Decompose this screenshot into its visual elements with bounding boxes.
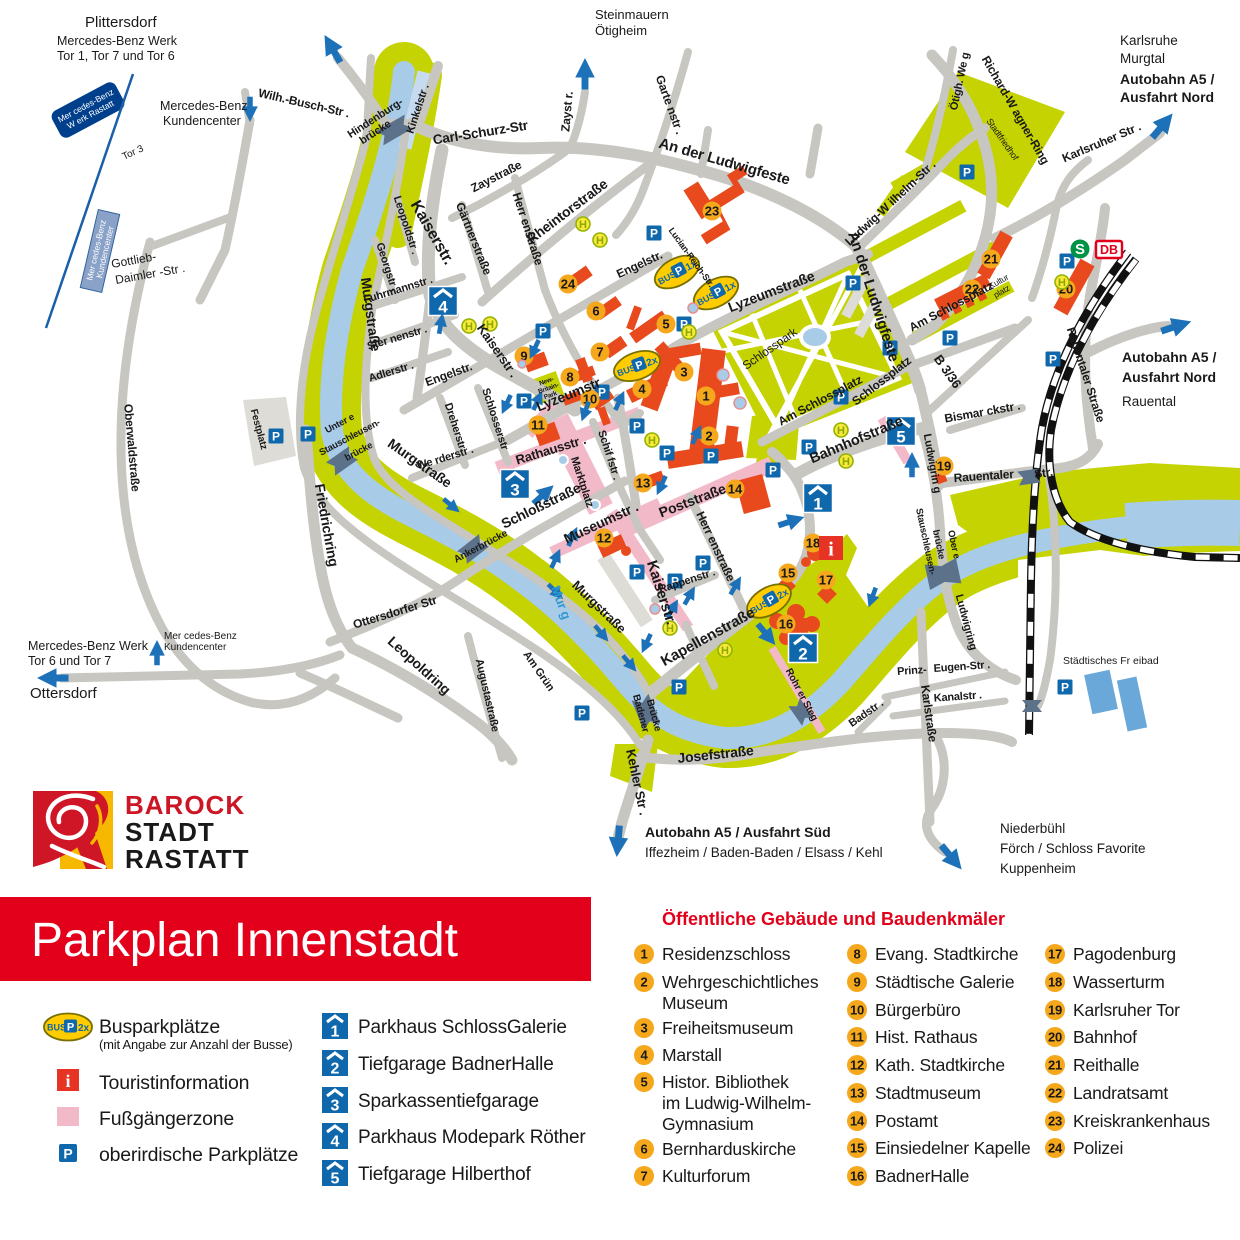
svg-text:Touristinformation: Touristinformation <box>99 1072 249 1094</box>
svg-text:Tor 6 und Tor 7: Tor 6 und Tor 7 <box>28 654 111 668</box>
svg-text:Bahnhof: Bahnhof <box>1073 1027 1137 1047</box>
svg-text:12: 12 <box>597 531 611 546</box>
svg-text:Mer cedes-Benz: Mer cedes-Benz <box>164 631 237 642</box>
svg-text:im Ludwig-Wilhelm-: im Ludwig-Wilhelm- <box>662 1093 811 1113</box>
svg-text:Ottersdorf: Ottersdorf <box>30 685 98 702</box>
svg-text:Murgtal: Murgtal <box>1120 51 1165 66</box>
svg-text:2: 2 <box>640 975 647 990</box>
svg-text:23: 23 <box>705 204 719 219</box>
svg-text:Parkplan Innenstadt: Parkplan Innenstadt <box>31 914 458 967</box>
svg-text:14: 14 <box>728 482 743 497</box>
svg-text:P: P <box>769 464 777 478</box>
svg-text:Tor 1, Tor 7 und Tor 6: Tor 1, Tor 7 und Tor 6 <box>57 49 175 63</box>
svg-text:i: i <box>828 539 834 561</box>
svg-text:8: 8 <box>853 947 860 962</box>
svg-text:Mercedes-Benz Werk: Mercedes-Benz Werk <box>57 34 178 48</box>
svg-text:Steinmauern: Steinmauern <box>595 7 669 22</box>
svg-text:5: 5 <box>331 1171 340 1188</box>
svg-text:23: 23 <box>1048 1114 1062 1129</box>
svg-text:P: P <box>1061 681 1069 695</box>
svg-text:H: H <box>465 321 473 333</box>
svg-text:24: 24 <box>1048 1141 1063 1156</box>
svg-text:16: 16 <box>779 617 793 632</box>
svg-text:RASTATT: RASTATT <box>125 844 249 874</box>
svg-text:Prinz-: Prinz- <box>897 664 928 678</box>
svg-text:(mit Angabe zur Anzahl der Bus: (mit Angabe zur Anzahl der Busse) <box>99 1037 293 1052</box>
svg-text:2: 2 <box>331 1061 340 1078</box>
svg-text:H: H <box>579 219 587 231</box>
svg-text:6: 6 <box>592 304 599 319</box>
svg-text:Kundencenter: Kundencenter <box>163 114 241 128</box>
svg-text:4: 4 <box>640 1048 648 1063</box>
svg-text:Parkhaus Modepark Röther: Parkhaus Modepark Röther <box>358 1127 586 1148</box>
svg-text:Städtische Galerie: Städtische Galerie <box>875 972 1014 992</box>
svg-text:P: P <box>633 566 641 580</box>
svg-text:Autobahn A5 /: Autobahn A5 / <box>1120 71 1214 87</box>
svg-text:BUS: BUS <box>47 1023 66 1033</box>
svg-text:Ötigheim: Ötigheim <box>595 23 647 38</box>
svg-text:Iffezheim / Baden-Baden / Elsa: Iffezheim / Baden-Baden / Elsass / Kehl <box>645 845 883 860</box>
svg-text:19: 19 <box>1048 1003 1062 1018</box>
svg-text:BAROCK: BAROCK <box>125 790 245 820</box>
svg-text:1: 1 <box>331 1024 340 1041</box>
svg-text:Einsiedelner Kapelle: Einsiedelner Kapelle <box>875 1138 1031 1158</box>
svg-text:3: 3 <box>510 481 519 500</box>
svg-text:Tiefgarage Hilberthof: Tiefgarage Hilberthof <box>358 1164 531 1185</box>
svg-text:20: 20 <box>1048 1030 1062 1045</box>
svg-text:Kreiskrankenhaus: Kreiskrankenhaus <box>1073 1111 1210 1131</box>
svg-text:Hist. Rathaus: Hist. Rathaus <box>875 1027 978 1047</box>
svg-text:Reithalle: Reithalle <box>1073 1055 1139 1075</box>
svg-text:P: P <box>578 707 586 721</box>
svg-text:Ausfahrt Nord: Ausfahrt Nord <box>1120 89 1214 105</box>
svg-text:Plittersdorf: Plittersdorf <box>85 14 158 31</box>
svg-text:P: P <box>707 450 715 464</box>
svg-text:3: 3 <box>680 365 687 380</box>
svg-text:15: 15 <box>850 1141 864 1156</box>
svg-text:P: P <box>520 395 528 409</box>
svg-text:1: 1 <box>813 495 822 514</box>
svg-text:9: 9 <box>853 975 860 990</box>
svg-text:7: 7 <box>596 345 603 360</box>
svg-text:Mercedes-Benz Werk: Mercedes-Benz Werk <box>28 639 149 653</box>
svg-text:Kuppenheim: Kuppenheim <box>1000 861 1076 876</box>
svg-text:8: 8 <box>566 370 573 385</box>
svg-text:P: P <box>650 227 658 241</box>
svg-text:Niederbühl: Niederbühl <box>1000 821 1065 836</box>
svg-text:Wasserturm: Wasserturm <box>1073 972 1165 992</box>
svg-text:11: 11 <box>531 418 545 433</box>
svg-text:H: H <box>648 435 656 447</box>
svg-text:17: 17 <box>1048 947 1062 962</box>
svg-text:P: P <box>1063 255 1071 269</box>
svg-text:P: P <box>663 447 671 461</box>
svg-text:P: P <box>675 681 683 695</box>
svg-text:10: 10 <box>850 1003 864 1018</box>
svg-text:12: 12 <box>850 1058 864 1073</box>
svg-text:Histor. Bibliothek: Histor. Bibliothek <box>662 1072 789 1092</box>
svg-text:P: P <box>963 166 971 180</box>
svg-text:H: H <box>721 645 729 657</box>
svg-text:11: 11 <box>850 1030 863 1045</box>
svg-text:BadnerHalle: BadnerHalle <box>875 1166 969 1186</box>
svg-text:13: 13 <box>636 476 650 491</box>
svg-text:15: 15 <box>781 566 795 581</box>
svg-text:3: 3 <box>331 1098 340 1115</box>
svg-text:Marstall: Marstall <box>662 1045 722 1065</box>
svg-text:STADT: STADT <box>125 817 215 847</box>
svg-text:H: H <box>842 456 850 468</box>
svg-text:Kulturforum: Kulturforum <box>662 1166 750 1186</box>
svg-text:Str.: Str. <box>1033 465 1053 481</box>
svg-text:Öffentliche Gebäude und Bauden: Öffentliche Gebäude und Baudenkmäler <box>662 909 1005 929</box>
svg-text:1: 1 <box>640 947 647 962</box>
svg-text:Busparkplätze: Busparkplätze <box>99 1016 220 1038</box>
svg-text:Polizei: Polizei <box>1073 1138 1123 1158</box>
svg-text:1: 1 <box>702 389 709 404</box>
svg-text:Parkhaus SchlossGalerie: Parkhaus SchlossGalerie <box>358 1017 567 1038</box>
svg-text:Autobahn A5 / Ausfahrt Süd: Autobahn A5 / Ausfahrt Süd <box>645 824 831 840</box>
svg-text:21: 21 <box>1048 1058 1062 1073</box>
svg-text:P: P <box>849 277 857 291</box>
svg-text:Wehrgeschichtliches: Wehrgeschichtliches <box>662 972 819 992</box>
svg-text:21: 21 <box>984 252 998 267</box>
svg-text:Freiheitsmuseum: Freiheitsmuseum <box>662 1018 793 1038</box>
svg-text:Rauental: Rauental <box>1122 394 1176 409</box>
svg-text:4: 4 <box>331 1134 340 1151</box>
svg-text:Ausfahrt Nord: Ausfahrt Nord <box>1122 369 1216 385</box>
svg-text:Pagodenburg: Pagodenburg <box>1073 944 1176 964</box>
svg-text:Tiefgarage BadnerHalle: Tiefgarage BadnerHalle <box>358 1054 554 1075</box>
svg-text:4: 4 <box>438 298 448 317</box>
svg-text:Karlsruhe: Karlsruhe <box>1120 33 1178 48</box>
svg-text:Stadtmuseum: Stadtmuseum <box>875 1083 981 1103</box>
svg-text:P: P <box>272 430 280 444</box>
svg-text:16: 16 <box>850 1169 864 1184</box>
svg-text:H: H <box>1058 277 1066 289</box>
svg-text:H: H <box>685 327 693 339</box>
svg-text:4: 4 <box>638 382 646 397</box>
svg-text:Gymnasium: Gymnasium <box>662 1114 754 1134</box>
svg-text:3: 3 <box>640 1021 647 1036</box>
svg-text:17: 17 <box>819 573 833 588</box>
svg-text:5: 5 <box>662 317 669 332</box>
svg-text:oberirdische Parkplätze: oberirdische Parkplätze <box>99 1144 298 1166</box>
svg-text:Sparkassentiefgarage: Sparkassentiefgarage <box>358 1091 539 1112</box>
svg-text:Postamt: Postamt <box>875 1111 938 1131</box>
svg-text:13: 13 <box>850 1086 864 1101</box>
svg-text:Bürgerbüro: Bürgerbüro <box>875 1000 961 1020</box>
svg-text:24: 24 <box>561 277 576 292</box>
svg-text:Museum: Museum <box>662 993 728 1013</box>
svg-text:P: P <box>1049 353 1057 367</box>
svg-text:Karlsruher Tor: Karlsruher Tor <box>1073 1000 1180 1020</box>
svg-text:P: P <box>63 1146 72 1162</box>
svg-text:2: 2 <box>705 429 712 444</box>
svg-text:P: P <box>633 420 641 434</box>
svg-text:2: 2 <box>798 645 807 664</box>
svg-text:Bernharduskirche: Bernharduskirche <box>662 1139 796 1159</box>
svg-text:Autobahn A5 /: Autobahn A5 / <box>1122 349 1216 365</box>
svg-text:Städtisches Fr eibad: Städtisches Fr eibad <box>1063 655 1159 667</box>
svg-text:P: P <box>304 428 312 442</box>
svg-text:i: i <box>65 1071 70 1091</box>
svg-text:P: P <box>946 332 954 346</box>
svg-text:H: H <box>596 235 604 247</box>
svg-text:Landratsamt: Landratsamt <box>1073 1083 1168 1103</box>
svg-text:Evang. Stadtkirche: Evang. Stadtkirche <box>875 944 1018 964</box>
svg-text:5: 5 <box>640 1075 647 1090</box>
svg-text:Mercedes-Benz: Mercedes-Benz <box>160 99 248 113</box>
svg-text:7: 7 <box>640 1169 647 1184</box>
svg-text:Fußgängerzone: Fußgängerzone <box>99 1108 234 1130</box>
svg-text:18: 18 <box>1048 975 1062 990</box>
svg-text:2x: 2x <box>78 1023 90 1034</box>
svg-text:Förch / Schloss Favorite: Förch / Schloss Favorite <box>1000 841 1146 856</box>
svg-text:18: 18 <box>806 536 820 551</box>
svg-text:Kath. Stadtkirche: Kath. Stadtkirche <box>875 1055 1005 1075</box>
svg-text:Residenzschloss: Residenzschloss <box>662 944 791 964</box>
svg-text:S: S <box>1075 241 1085 258</box>
svg-text:6: 6 <box>640 1142 647 1157</box>
svg-text:22: 22 <box>1048 1086 1062 1101</box>
svg-text:14: 14 <box>850 1114 865 1129</box>
svg-text:Kundencenter: Kundencenter <box>164 642 227 653</box>
svg-text:P: P <box>67 1022 74 1034</box>
svg-text:DB: DB <box>1100 243 1118 257</box>
svg-text:H: H <box>837 425 845 437</box>
svg-text:P: P <box>539 325 547 339</box>
